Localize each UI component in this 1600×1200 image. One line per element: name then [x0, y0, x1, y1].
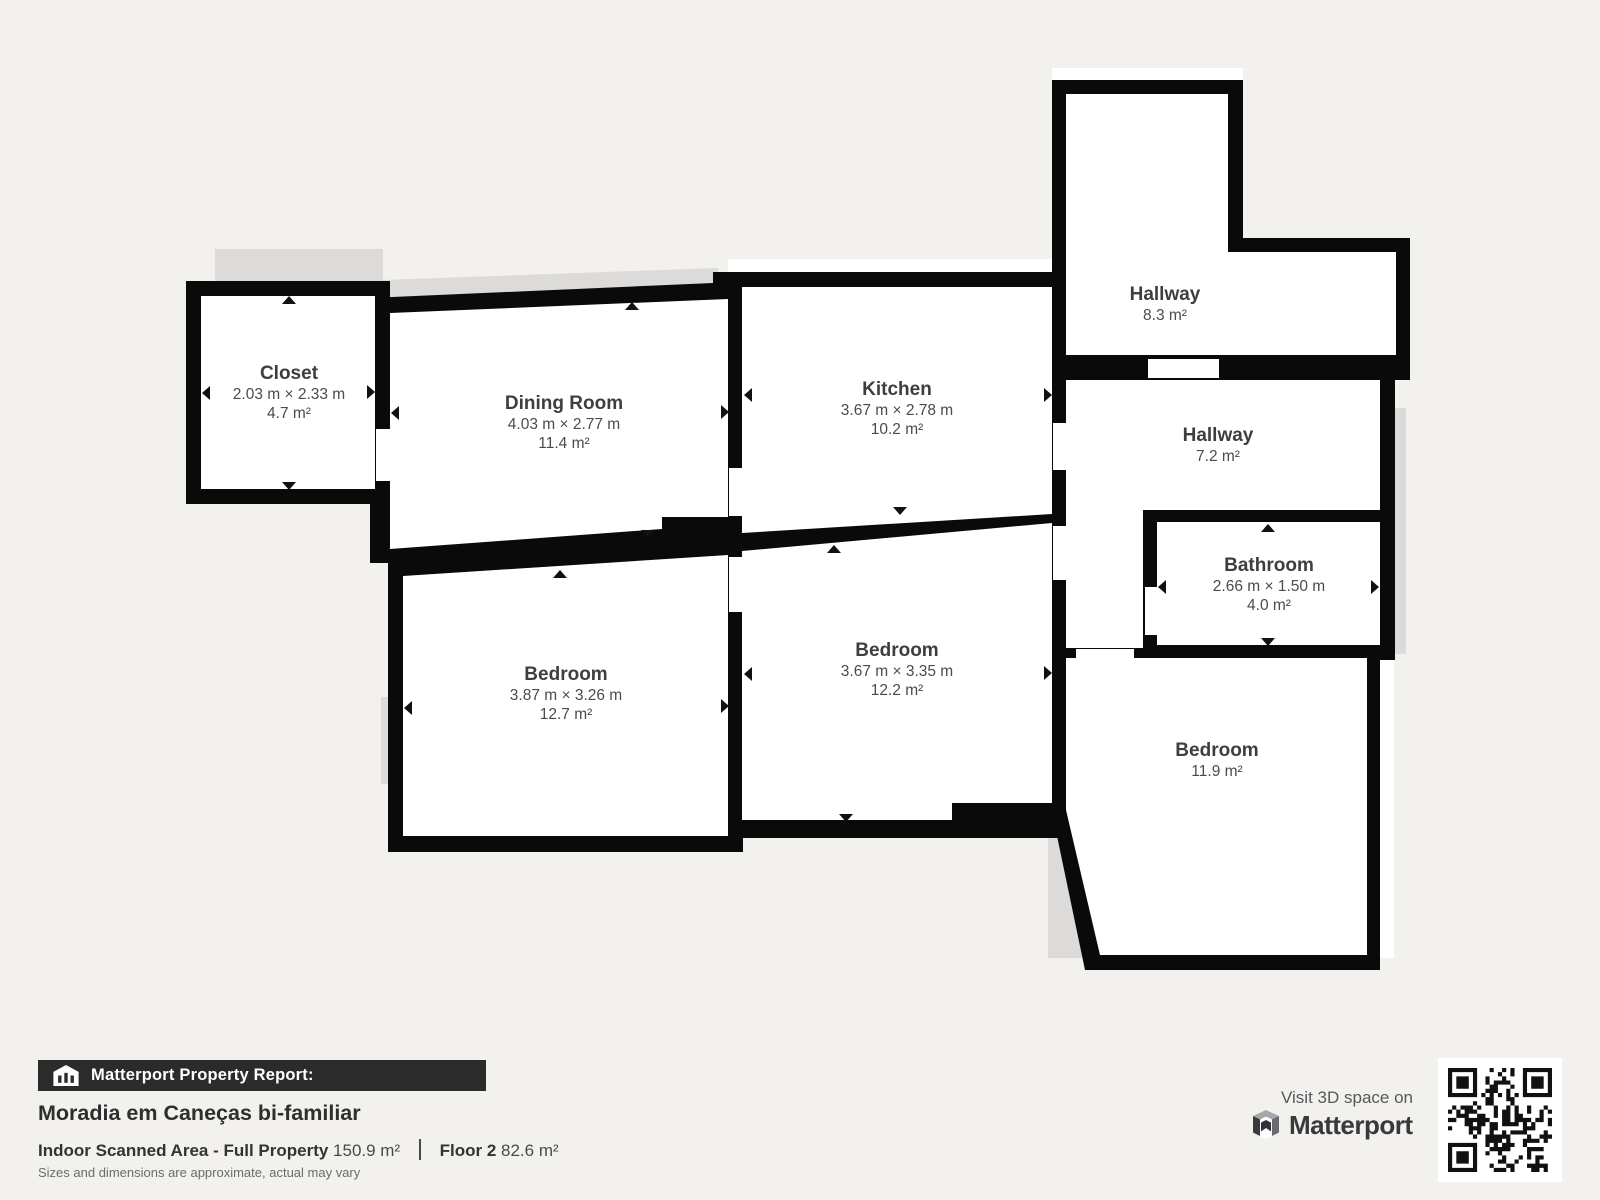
house-icon — [53, 1065, 79, 1086]
room-label-hallway-lower: Hallway 7.2 m² — [1183, 425, 1254, 466]
info-divider — [419, 1139, 421, 1160]
room-label-closet: Closet 2.03 m × 2.33 m 4.7 m² — [233, 363, 345, 423]
scanned-area-value: 150.9 m² — [333, 1141, 400, 1160]
room-dimensions: 3.67 m × 3.35 m — [841, 662, 953, 681]
room-area: 12.7 m² — [510, 705, 622, 724]
qr-code — [1438, 1058, 1562, 1182]
room-area: 8.3 m² — [1130, 306, 1201, 325]
room-name: Bedroom — [510, 664, 622, 686]
matterport-logo: Matterport — [1251, 1109, 1413, 1141]
room-label-bedroom-right: Bedroom 11.9 m² — [1175, 740, 1258, 781]
room-area: 11.4 m² — [505, 434, 623, 453]
room-label-bathroom: Bathroom 2.66 m × 1.50 m 4.0 m² — [1213, 555, 1325, 615]
floor-label: Floor 2 — [440, 1141, 497, 1160]
room-dimensions: 2.66 m × 1.50 m — [1213, 577, 1325, 596]
room-name: Hallway — [1130, 284, 1201, 306]
room-name: Dining Room — [505, 393, 623, 415]
disclaimer-text: Sizes and dimensions are approximate, ac… — [38, 1165, 360, 1180]
room-area: 11.9 m² — [1175, 762, 1258, 781]
room-area: 4.0 m² — [1213, 596, 1325, 615]
report-bar-label: Matterport Property Report: — [91, 1066, 314, 1085]
room-label-dining-room: Dining Room 4.03 m × 2.77 m 11.4 m² — [505, 393, 623, 453]
matterport-mark-icon — [1251, 1109, 1281, 1141]
room-name: Hallway — [1183, 425, 1254, 447]
room-label-kitchen: Kitchen 3.67 m × 2.78 m 10.2 m² — [841, 379, 953, 439]
room-label-bedroom-left: Bedroom 3.87 m × 3.26 m 12.7 m² — [510, 664, 622, 724]
property-title: Moradia em Caneças bi-familiar — [38, 1101, 361, 1126]
room-name: Bedroom — [841, 640, 953, 662]
room-name: Bathroom — [1213, 555, 1325, 577]
room-label-hallway-upper: Hallway 8.3 m² — [1130, 284, 1201, 325]
report-header-bar: Matterport Property Report: — [38, 1060, 486, 1091]
room-dimensions: 4.03 m × 2.77 m — [505, 415, 623, 434]
scanned-area-label: Indoor Scanned Area - Full Property — [38, 1141, 328, 1160]
room-dimensions: 3.87 m × 3.26 m — [510, 686, 622, 705]
room-dimensions: 2.03 m × 2.33 m — [233, 385, 345, 404]
floor-plan — [0, 0, 1600, 1200]
room-name: Kitchen — [841, 379, 953, 401]
room-dimensions: 3.67 m × 2.78 m — [841, 401, 953, 420]
room-area: 4.7 m² — [233, 404, 345, 423]
visit-3d-space-label: Visit 3D space on — [1281, 1088, 1413, 1108]
room-name: Bedroom — [1175, 740, 1258, 762]
room-name: Closet — [233, 363, 345, 385]
floor-bedroom-right — [1066, 658, 1367, 955]
scan-info-line: Indoor Scanned Area - Full Property 150.… — [38, 1139, 559, 1161]
room-area: 7.2 m² — [1183, 447, 1254, 466]
room-area: 12.2 m² — [841, 681, 953, 700]
floor-area-value: 82.6 m² — [501, 1141, 559, 1160]
room-label-bedroom-middle: Bedroom 3.67 m × 3.35 m 12.2 m² — [841, 640, 953, 700]
brand-wordmark: Matterport — [1289, 1110, 1413, 1141]
room-area: 10.2 m² — [841, 420, 953, 439]
